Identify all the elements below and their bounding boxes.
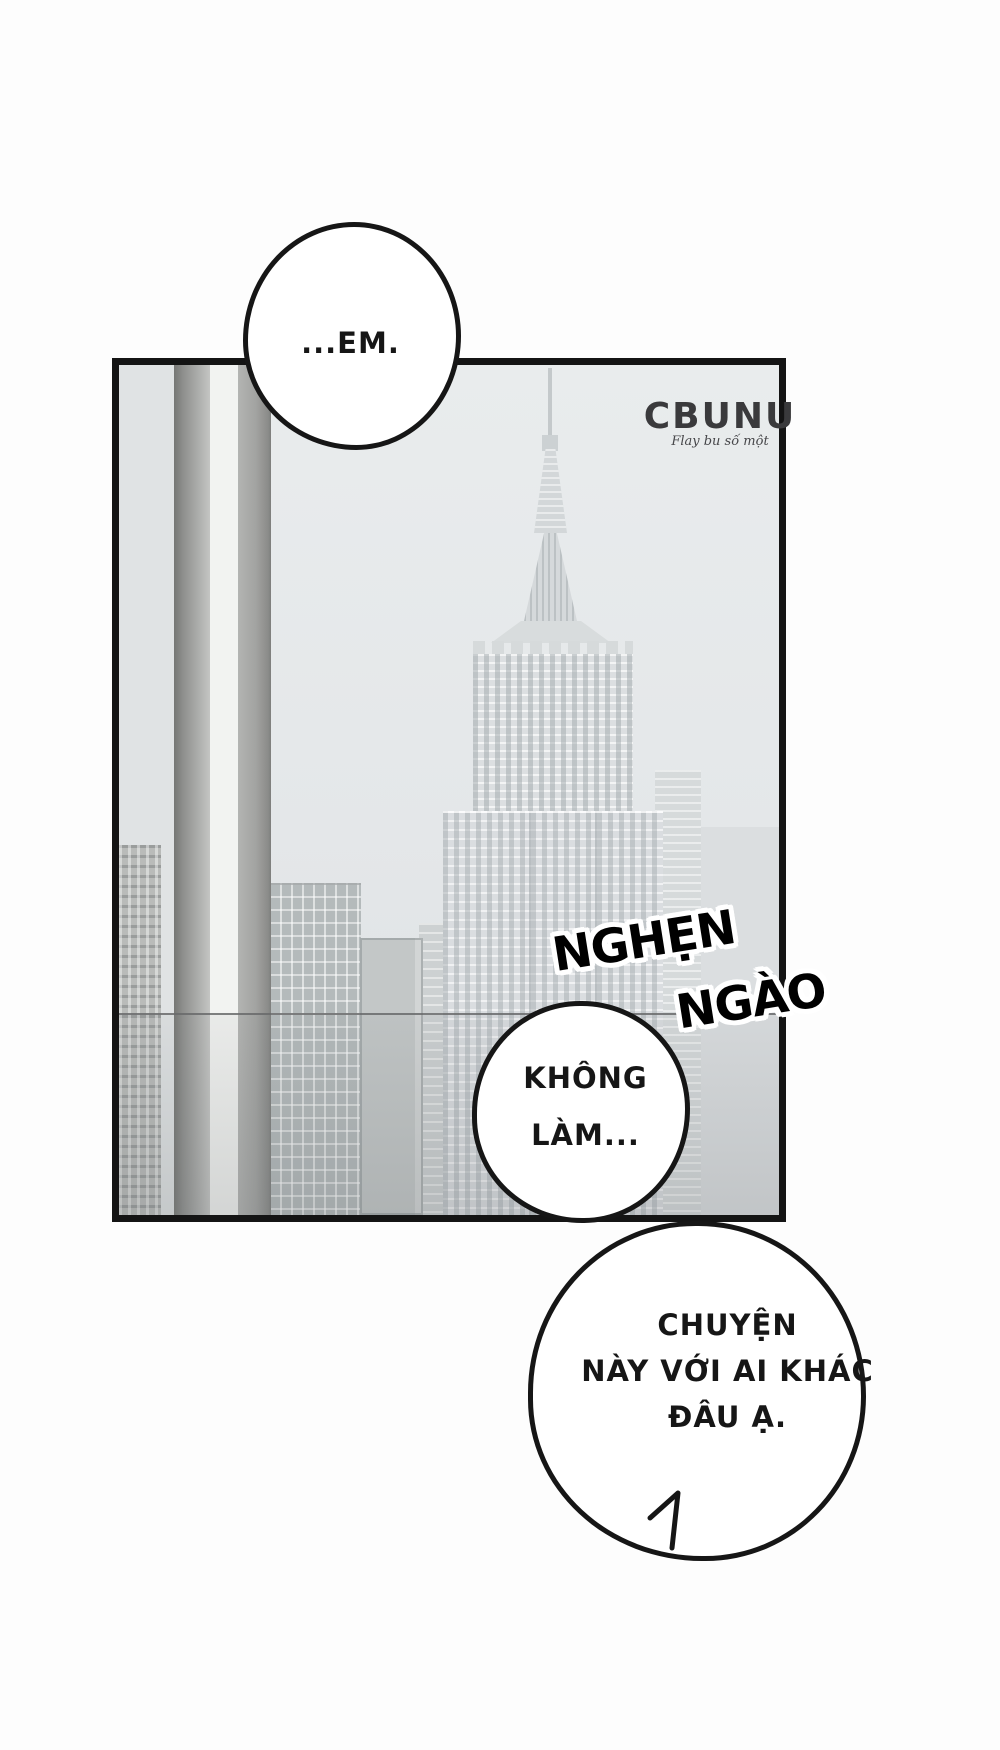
speech-line: CHUYỆN bbox=[560, 1302, 895, 1348]
skyscraper-cap bbox=[542, 435, 558, 451]
speech-text-top: ...EM. bbox=[258, 326, 443, 360]
speech-line: ...EM. bbox=[258, 326, 443, 360]
skyscraper-upper-tower bbox=[473, 654, 633, 811]
watermark-brand: CBUNU bbox=[640, 396, 800, 437]
skyscraper-battlement bbox=[473, 641, 633, 654]
skyscraper-crown bbox=[534, 449, 567, 533]
speech-text-middle: KHÔNG LÀM... bbox=[478, 1050, 693, 1164]
skyscraper-neck bbox=[524, 533, 577, 621]
speech-line: KHÔNG bbox=[478, 1050, 693, 1107]
skyscraper-shoulders bbox=[491, 621, 611, 643]
speech-text-bottom: CHUYỆN NÀY VỚI AI KHÁC ĐÂU Ạ. bbox=[560, 1302, 895, 1440]
speech-line: ĐÂU Ạ. bbox=[560, 1394, 895, 1440]
speech-line: NÀY VỚI AI KHÁC bbox=[560, 1348, 895, 1394]
speech-tail bbox=[642, 1488, 702, 1552]
speech-line: LÀM... bbox=[478, 1107, 693, 1164]
watermark: CBUNU Flay bu số một bbox=[640, 396, 800, 449]
